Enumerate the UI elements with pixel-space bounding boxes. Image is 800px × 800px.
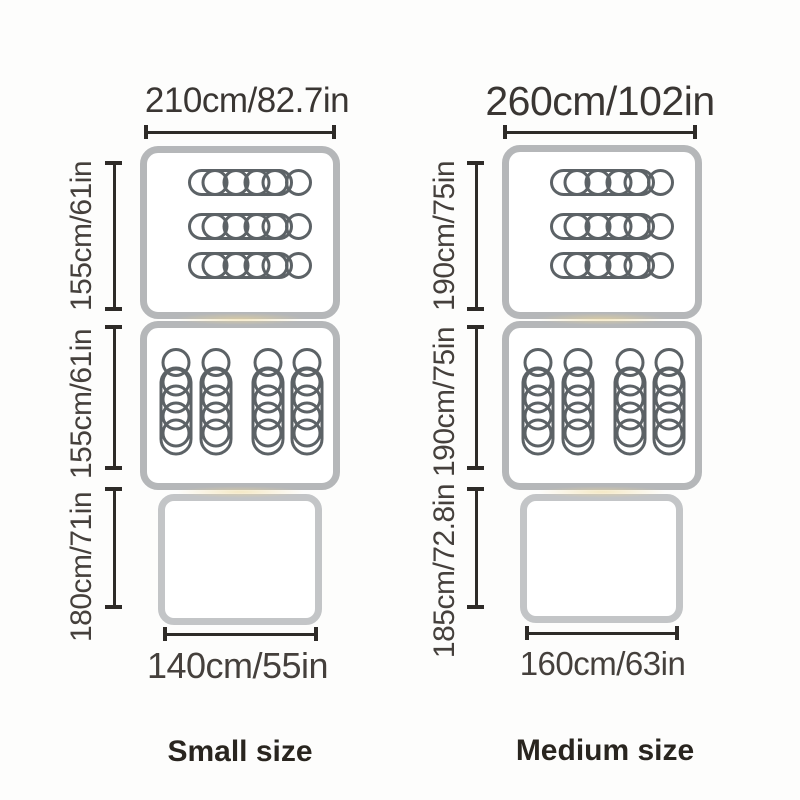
middle-room-depth-label: 190cm/75in <box>430 327 460 477</box>
vestibule-depth-label: 185cm/72.8in <box>430 484 460 658</box>
sleeping-pad-icon <box>550 169 674 196</box>
sleeping-bag-icon <box>613 348 647 456</box>
junction-highlight <box>537 313 667 325</box>
sleeping-bag-icon <box>521 348 555 456</box>
sleeping-bag-icon <box>652 348 686 456</box>
vestibule-outline <box>520 494 683 623</box>
medium-size-diagram: 260cm/102in <box>0 0 800 800</box>
junction-highlight <box>537 486 667 498</box>
bottom-width-dimension-label: 160cm/63in <box>515 647 690 680</box>
size-name-label: Medium size <box>500 736 710 766</box>
top-width-dimension-label: 260cm/102in <box>484 81 716 122</box>
sleeping-pad-icon <box>550 213 674 240</box>
sleeping-pad-icon <box>550 252 674 279</box>
sleeping-bag-icon <box>561 348 595 456</box>
top-room-depth-label: 190cm/75in <box>430 161 460 311</box>
tent-size-chart: 210cm/82.7in <box>0 0 800 800</box>
